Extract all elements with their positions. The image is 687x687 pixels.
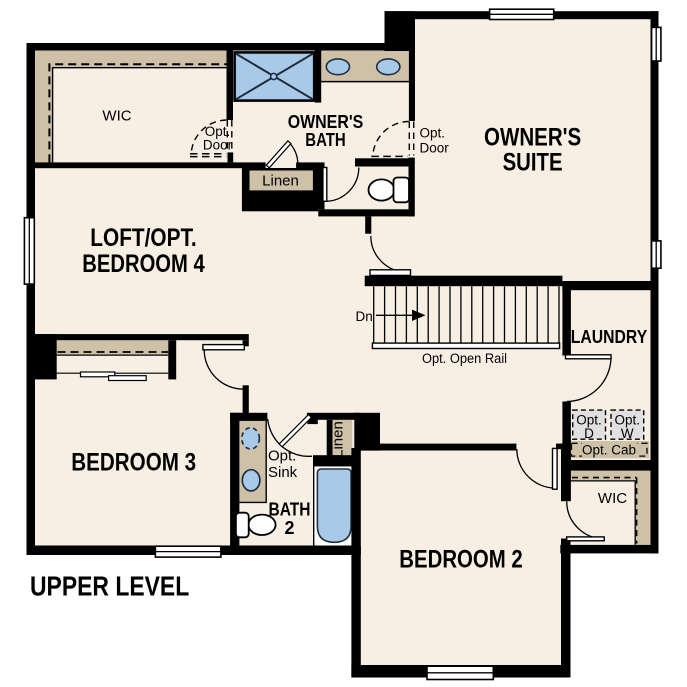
svg-text:D: D <box>584 426 594 441</box>
svg-text:2: 2 <box>284 518 294 538</box>
svg-text:BATH: BATH <box>269 500 311 520</box>
svg-text:W: W <box>621 426 634 441</box>
svg-text:Opt. Open Rail: Opt. Open Rail <box>422 351 507 366</box>
svg-text:BEDROOM 3: BEDROOM 3 <box>71 449 196 477</box>
svg-text:BEDROOM 4: BEDROOM 4 <box>82 250 205 278</box>
svg-text:UPPER LEVEL: UPPER LEVEL <box>30 571 189 602</box>
svg-text:Opt. Cab: Opt. Cab <box>582 442 636 457</box>
svg-text:WIC: WIC <box>598 490 627 507</box>
svg-text:BEDROOM 2: BEDROOM 2 <box>399 546 522 574</box>
svg-text:WIC: WIC <box>102 108 131 125</box>
svg-text:Door: Door <box>420 141 450 156</box>
svg-text:OWNER'S: OWNER'S <box>288 112 364 132</box>
svg-text:OWNER'S: OWNER'S <box>484 124 581 152</box>
svg-text:Opt.: Opt. <box>268 448 296 465</box>
svg-text:SUITE: SUITE <box>503 149 563 177</box>
svg-text:Sink: Sink <box>268 464 298 481</box>
svg-text:Linen: Linen <box>329 421 346 458</box>
svg-text:LOFT/OPT.: LOFT/OPT. <box>90 224 196 252</box>
svg-text:BATH: BATH <box>305 130 346 150</box>
svg-text:LAUNDRY: LAUNDRY <box>571 327 647 347</box>
svg-text:Dn: Dn <box>356 309 373 324</box>
svg-text:Door: Door <box>203 138 233 153</box>
svg-text:Opt.: Opt. <box>420 126 446 141</box>
svg-text:Linen: Linen <box>262 172 299 189</box>
